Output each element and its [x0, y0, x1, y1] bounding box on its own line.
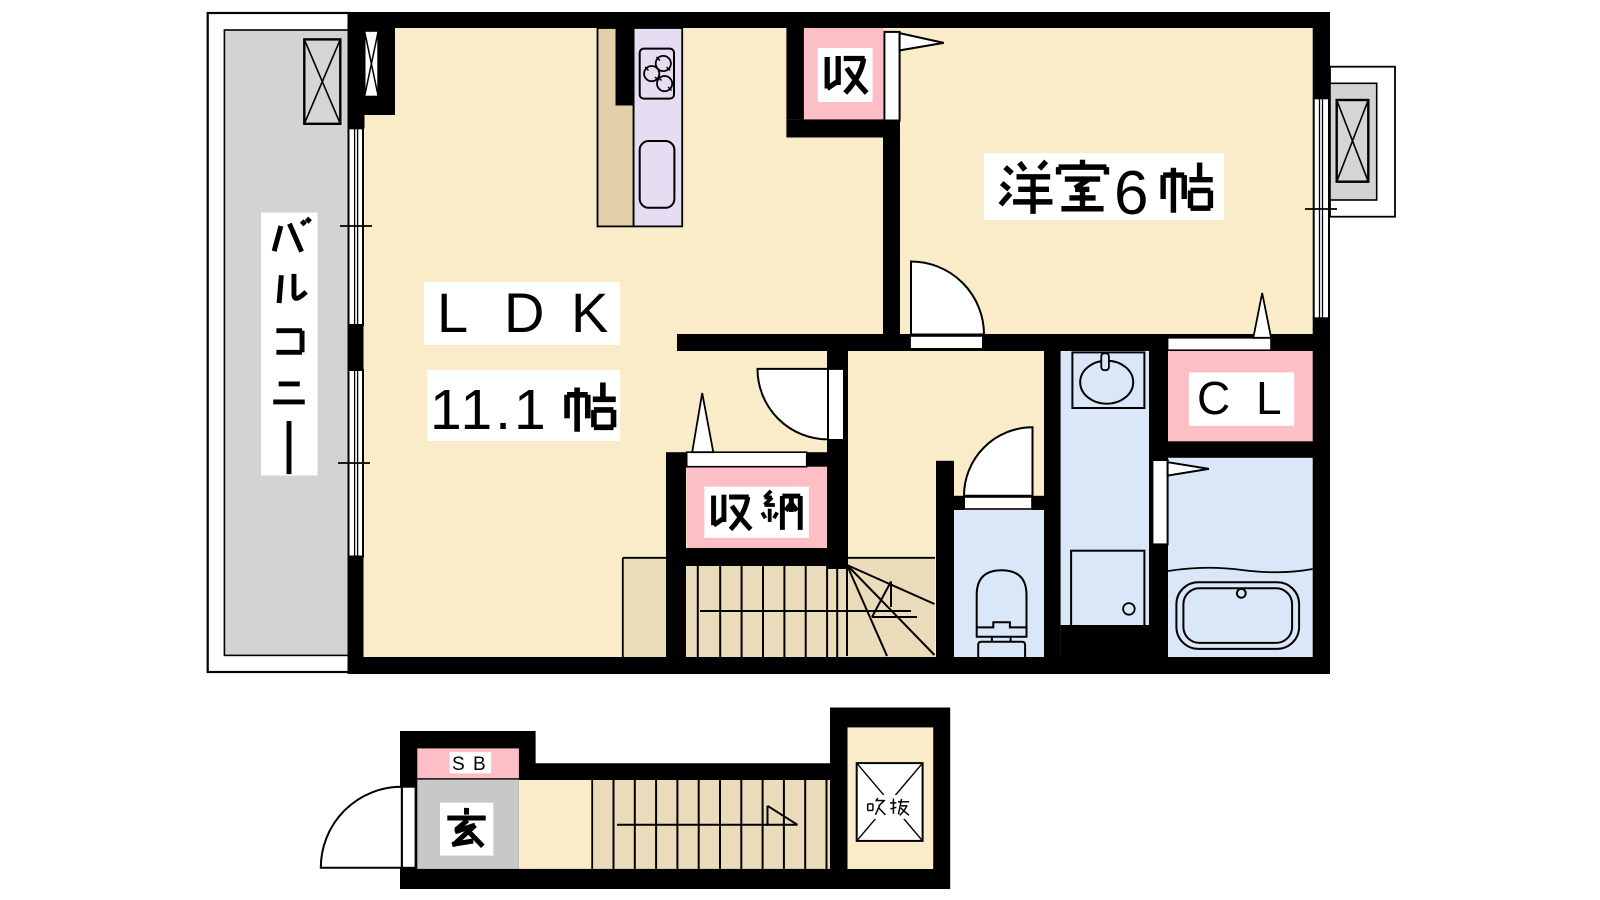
svg-text:D: D [504, 281, 544, 344]
svg-text:C: C [1197, 372, 1230, 424]
svg-text:11.1: 11.1 [430, 378, 549, 442]
svg-text:6: 6 [1114, 159, 1148, 228]
svg-text:K: K [571, 281, 608, 344]
svg-text:S: S [452, 754, 465, 775]
svg-text:L: L [1256, 372, 1282, 424]
svg-text:L: L [437, 281, 468, 344]
svg-text:B: B [473, 754, 486, 775]
